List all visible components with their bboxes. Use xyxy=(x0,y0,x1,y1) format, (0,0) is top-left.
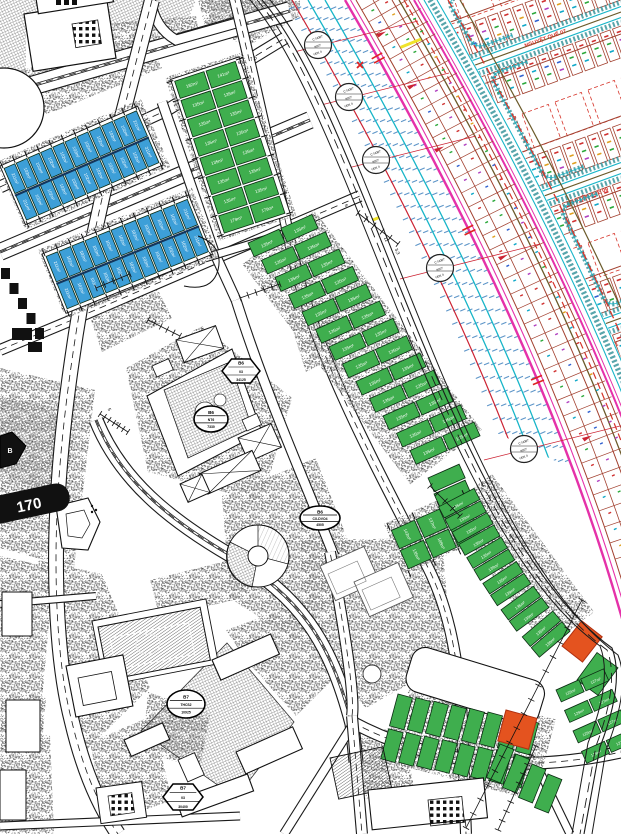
svg-text:B6: B6 xyxy=(317,509,323,514)
svg-text:30400: 30400 xyxy=(178,805,188,809)
svg-text:NT6: NT6 xyxy=(208,418,215,422)
svg-text:B6: B6 xyxy=(208,410,214,415)
svg-text:B7: B7 xyxy=(183,695,189,700)
svg-text:B: B xyxy=(7,448,12,455)
svg-text:10925: 10925 xyxy=(181,711,191,715)
svg-text:CX-DVO4: CX-DVO4 xyxy=(312,517,327,521)
svg-text:B6: B6 xyxy=(238,361,244,366)
svg-text:34125: 34125 xyxy=(236,378,246,382)
svg-text:THCS2: THCS2 xyxy=(180,703,191,707)
svg-text:7330: 7330 xyxy=(207,425,215,429)
svg-text:B7: B7 xyxy=(180,786,186,791)
svg-text:03: 03 xyxy=(181,796,185,800)
svg-text:4505: 4505 xyxy=(316,523,324,527)
svg-text:03: 03 xyxy=(239,370,243,374)
